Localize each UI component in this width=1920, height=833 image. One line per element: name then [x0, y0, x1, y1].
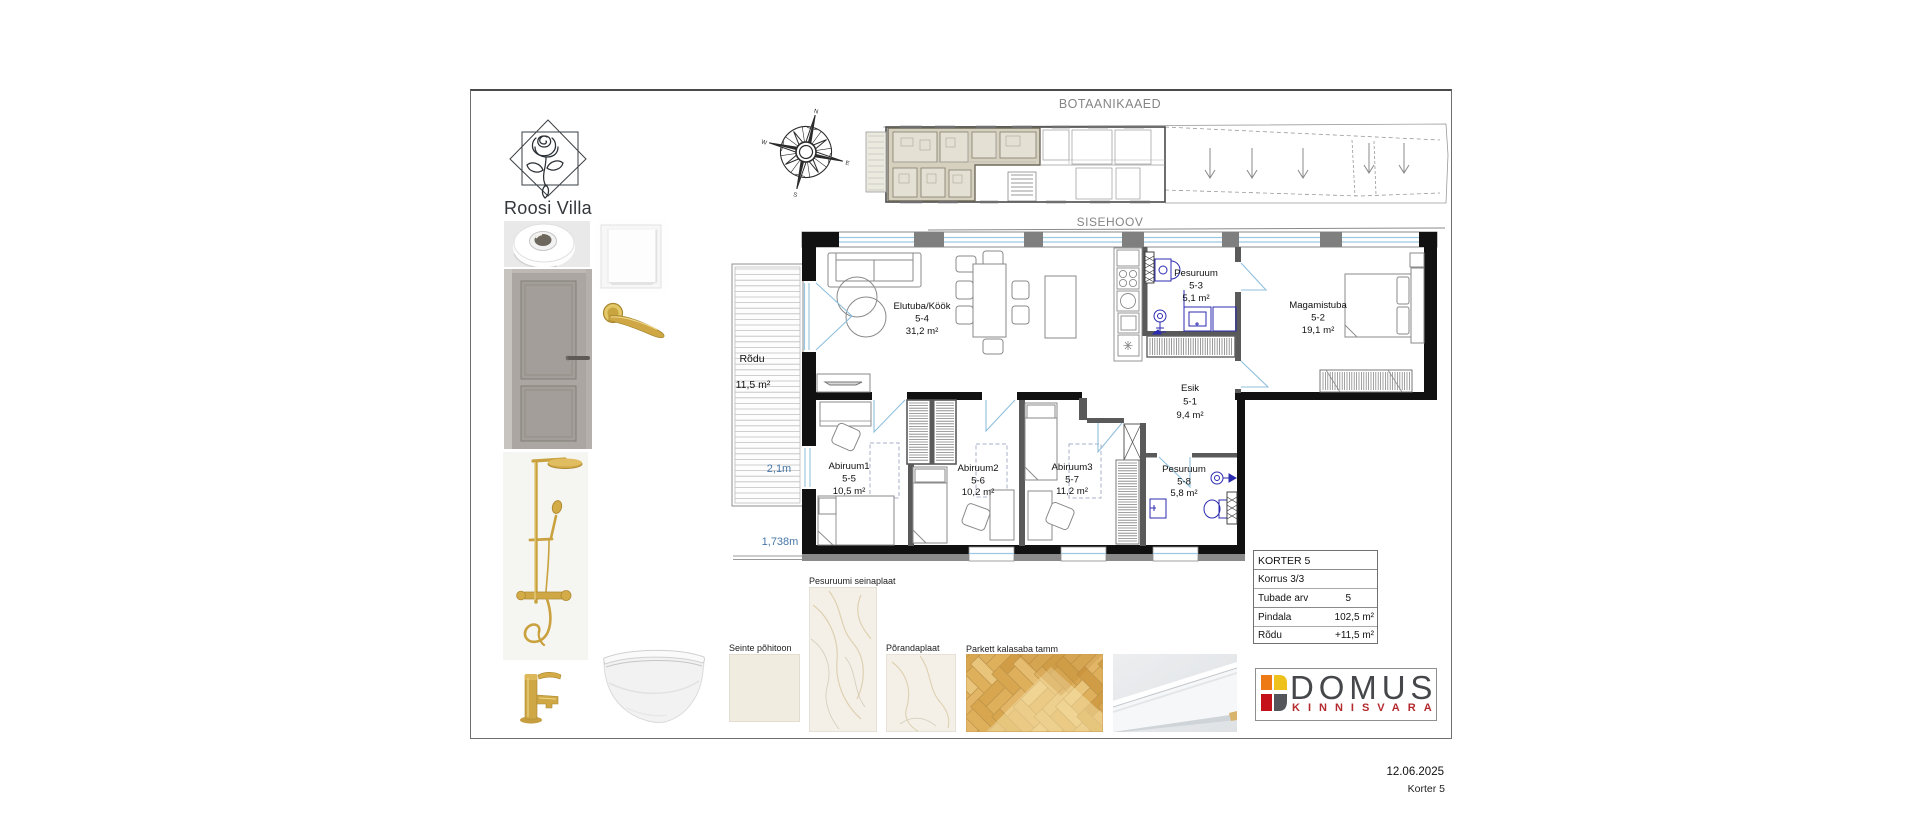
svg-text:5-4: 5-4 — [915, 314, 930, 325]
svg-text:10,2 m²: 10,2 m² — [962, 487, 995, 498]
svg-text:Magamistuba: Magamistuba — [1289, 300, 1347, 311]
svg-text:5-7: 5-7 — [1065, 475, 1079, 486]
svg-text:10,5 m²: 10,5 m² — [833, 486, 866, 497]
svg-text:5-5: 5-5 — [842, 474, 856, 485]
svg-text:Elutuba/Köök: Elutuba/Köök — [893, 301, 950, 312]
svg-text:W: W — [760, 139, 767, 146]
svg-text:5,8 m²: 5,8 m² — [1170, 488, 1198, 499]
svg-text:9,4 m²: 9,4 m² — [1176, 410, 1204, 421]
svg-text:S: S — [792, 192, 797, 199]
svg-text:11,2 m²: 11,2 m² — [1056, 486, 1089, 497]
svg-text:5,1 m²: 5,1 m² — [1182, 293, 1210, 304]
svg-text:5-8: 5-8 — [1177, 477, 1191, 488]
svg-text:5-1: 5-1 — [1183, 397, 1197, 408]
svg-text:Pesuruum: Pesuruum — [1174, 268, 1218, 279]
svg-text:Pesuruum: Pesuruum — [1162, 464, 1206, 475]
svg-text:Esik: Esik — [1181, 383, 1199, 394]
svg-text:Rõdu: Rõdu — [739, 353, 764, 365]
svg-text:1,738m: 1,738m — [762, 536, 799, 548]
svg-text:Abiruum2: Abiruum2 — [957, 463, 998, 474]
svg-text:5-6: 5-6 — [971, 476, 985, 487]
svg-text:Abiruum1: Abiruum1 — [828, 461, 869, 472]
svg-text:5-3: 5-3 — [1189, 281, 1203, 292]
svg-text:2,1m: 2,1m — [767, 463, 791, 475]
svg-text:N: N — [813, 109, 819, 116]
svg-text:31,2 m²: 31,2 m² — [906, 326, 939, 337]
svg-text:E: E — [845, 160, 850, 167]
svg-text:Abiruum3: Abiruum3 — [1051, 462, 1092, 473]
svg-text:19,1 m²: 19,1 m² — [1302, 325, 1335, 336]
svg-text:11,5 m²: 11,5 m² — [736, 379, 771, 391]
svg-text:5-2: 5-2 — [1311, 313, 1325, 324]
